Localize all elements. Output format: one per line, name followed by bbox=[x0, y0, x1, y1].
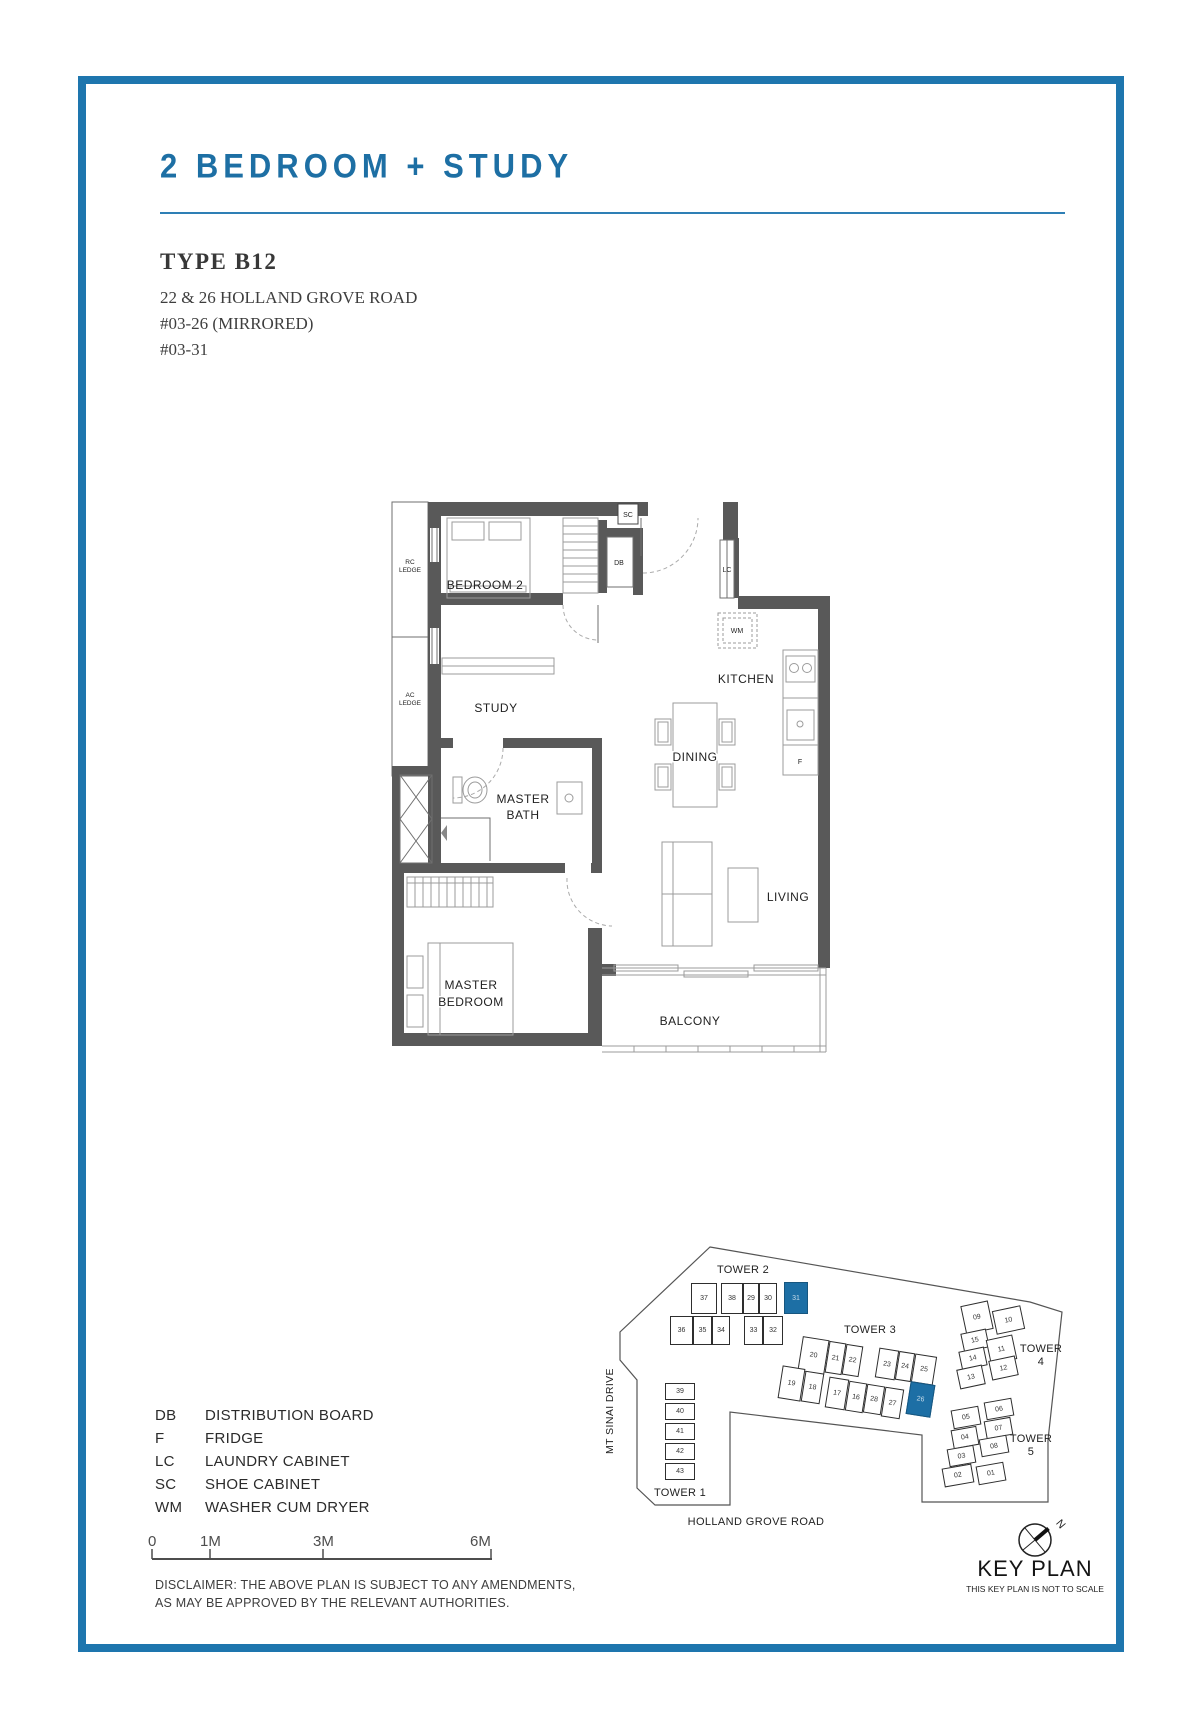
scale-label-3m: 3M bbox=[313, 1533, 334, 1550]
room-label-bedroom2: BEDROOM 2 bbox=[447, 578, 524, 592]
address-line: #03-31 bbox=[160, 337, 417, 363]
keyplan-unit-38: 38 bbox=[721, 1283, 743, 1314]
room-label-balcony: BALCONY bbox=[660, 1014, 721, 1028]
title-divider bbox=[160, 212, 1065, 214]
keyplan-unit-35: 35 bbox=[693, 1316, 712, 1345]
disclaimer-line: AS MAY BE APPROVED BY THE RELEVANT AUTHO… bbox=[155, 1594, 576, 1612]
room-label-master-bedroom: BEDROOM bbox=[438, 995, 504, 1009]
room-label-master-bedroom: MASTER bbox=[444, 978, 497, 992]
keyplan-unit-40: 40 bbox=[665, 1403, 695, 1420]
legend-desc: DISTRIBUTION BOARD bbox=[205, 1404, 374, 1427]
keyplan-unit-41: 41 bbox=[665, 1423, 695, 1440]
keyplan-unit-37: 37 bbox=[691, 1283, 717, 1314]
legend-abbr: LC bbox=[155, 1450, 205, 1473]
study-desk bbox=[442, 658, 554, 674]
keyplan-unit-25: 25 bbox=[911, 1353, 937, 1385]
room-label-living: LIVING bbox=[767, 890, 809, 904]
key-plan: TOWER 2 TOWER 3 TOWER 4 TOWER 5 TOWER 1 … bbox=[560, 1240, 1100, 1620]
fridge-label: F bbox=[798, 759, 802, 766]
keyplan-unit-30: 30 bbox=[759, 1283, 777, 1314]
balcony-glazing bbox=[602, 965, 826, 1052]
lc-label: LC bbox=[723, 567, 732, 574]
keyplan-unit-29: 29 bbox=[743, 1283, 759, 1314]
brochure-page: { "page": { "title": "2 BEDROOM + STUDY"… bbox=[0, 0, 1200, 1713]
address-line: 22 & 26 HOLLAND GROVE ROAD bbox=[160, 285, 417, 311]
keyplan-unit-32: 32 bbox=[763, 1316, 783, 1345]
tower4-label: TOWER bbox=[1011, 1343, 1071, 1355]
tower5-label: 5 bbox=[1001, 1446, 1061, 1458]
address-block: 22 & 26 HOLLAND GROVE ROAD #03-26 (MIRRO… bbox=[160, 285, 417, 363]
keyplan-unit-39: 39 bbox=[665, 1383, 695, 1400]
north-label: N bbox=[1053, 1518, 1067, 1532]
disclaimer-line: DISCLAIMER: THE ABOVE PLAN IS SUBJECT TO… bbox=[155, 1576, 576, 1594]
room-label-master-bath: MASTER bbox=[496, 792, 549, 806]
rc-ledge-label: LEDGE bbox=[399, 567, 422, 574]
legend-abbr: DB bbox=[155, 1404, 205, 1427]
floor-plan: RC LEDGE AC LEDGE SC bbox=[390, 498, 835, 1070]
legend: DB DISTRIBUTION BOARD F FRIDGE LC LAUNDR… bbox=[155, 1404, 374, 1519]
legend-row: DB DISTRIBUTION BOARD bbox=[155, 1404, 374, 1427]
legend-desc: WASHER CUM DRYER bbox=[205, 1496, 370, 1519]
legend-desc: SHOE CABINET bbox=[205, 1473, 320, 1496]
sc-label: SC bbox=[623, 512, 633, 519]
keyplan-unit-43: 43 bbox=[665, 1463, 695, 1480]
db-label: DB bbox=[614, 560, 624, 567]
keyplan-unit-26: 26 bbox=[906, 1381, 936, 1418]
rc-ledge-label: RC bbox=[405, 559, 415, 566]
address-line: #03-26 (MIRRORED) bbox=[160, 311, 417, 337]
tower2-label: TOWER 2 bbox=[703, 1264, 783, 1276]
tower1-label: TOWER 1 bbox=[640, 1487, 720, 1499]
keyplan-unit-34: 34 bbox=[712, 1316, 730, 1345]
keyplan-unit-36: 36 bbox=[670, 1316, 693, 1345]
legend-row: WM WASHER CUM DRYER bbox=[155, 1496, 374, 1519]
legend-abbr: F bbox=[155, 1427, 205, 1450]
room-label-dining: DINING bbox=[673, 750, 718, 764]
key-plan-title: KEY PLAN bbox=[955, 1556, 1115, 1582]
scale-bar: 0 1M 3M 6M bbox=[140, 1528, 510, 1568]
scale-label-6m: 6M bbox=[470, 1533, 491, 1550]
legend-desc: LAUNDRY CABINET bbox=[205, 1450, 350, 1473]
legend-row: F FRIDGE bbox=[155, 1427, 374, 1450]
master-bedroom-furniture bbox=[407, 877, 513, 1035]
kitchen-fittings bbox=[718, 613, 818, 775]
keyplan-unit-31: 31 bbox=[784, 1282, 808, 1314]
legend-row: SC SHOE CABINET bbox=[155, 1473, 374, 1496]
keyplan-unit-33: 33 bbox=[744, 1316, 763, 1345]
page-title: 2 BEDROOM + STUDY bbox=[160, 146, 573, 186]
scale-label-0: 0 bbox=[148, 1533, 156, 1550]
road-label-mt-sinai: MT SINAI DRIVE bbox=[604, 1366, 616, 1456]
road-label-holland-grove: HOLLAND GROVE ROAD bbox=[676, 1516, 836, 1528]
wm-label: WM bbox=[731, 628, 744, 635]
legend-abbr: WM bbox=[155, 1496, 205, 1519]
service-shaft bbox=[400, 775, 432, 863]
key-plan-subtitle: THIS KEY PLAN IS NOT TO SCALE bbox=[935, 1584, 1135, 1594]
ledge-outline bbox=[392, 502, 428, 776]
ac-ledge-label: AC bbox=[405, 692, 414, 699]
room-label-master-bath: BATH bbox=[506, 808, 539, 822]
room-label-study: STUDY bbox=[474, 701, 517, 715]
disclaimer: DISCLAIMER: THE ABOVE PLAN IS SUBJECT TO… bbox=[155, 1576, 576, 1612]
ac-ledge-label: LEDGE bbox=[399, 700, 422, 707]
legend-row: LC LAUNDRY CABINET bbox=[155, 1450, 374, 1473]
legend-abbr: SC bbox=[155, 1473, 205, 1496]
tower4-label: 4 bbox=[1011, 1356, 1071, 1368]
legend-desc: FRIDGE bbox=[205, 1427, 263, 1450]
keyplan-unit-42: 42 bbox=[665, 1443, 695, 1460]
scale-label-1m: 1M bbox=[200, 1533, 221, 1550]
tower3-label: TOWER 3 bbox=[830, 1324, 910, 1336]
room-label-kitchen: KITCHEN bbox=[718, 672, 774, 686]
living-furniture bbox=[662, 842, 758, 946]
unit-type-label: TYPE B12 bbox=[160, 249, 277, 275]
